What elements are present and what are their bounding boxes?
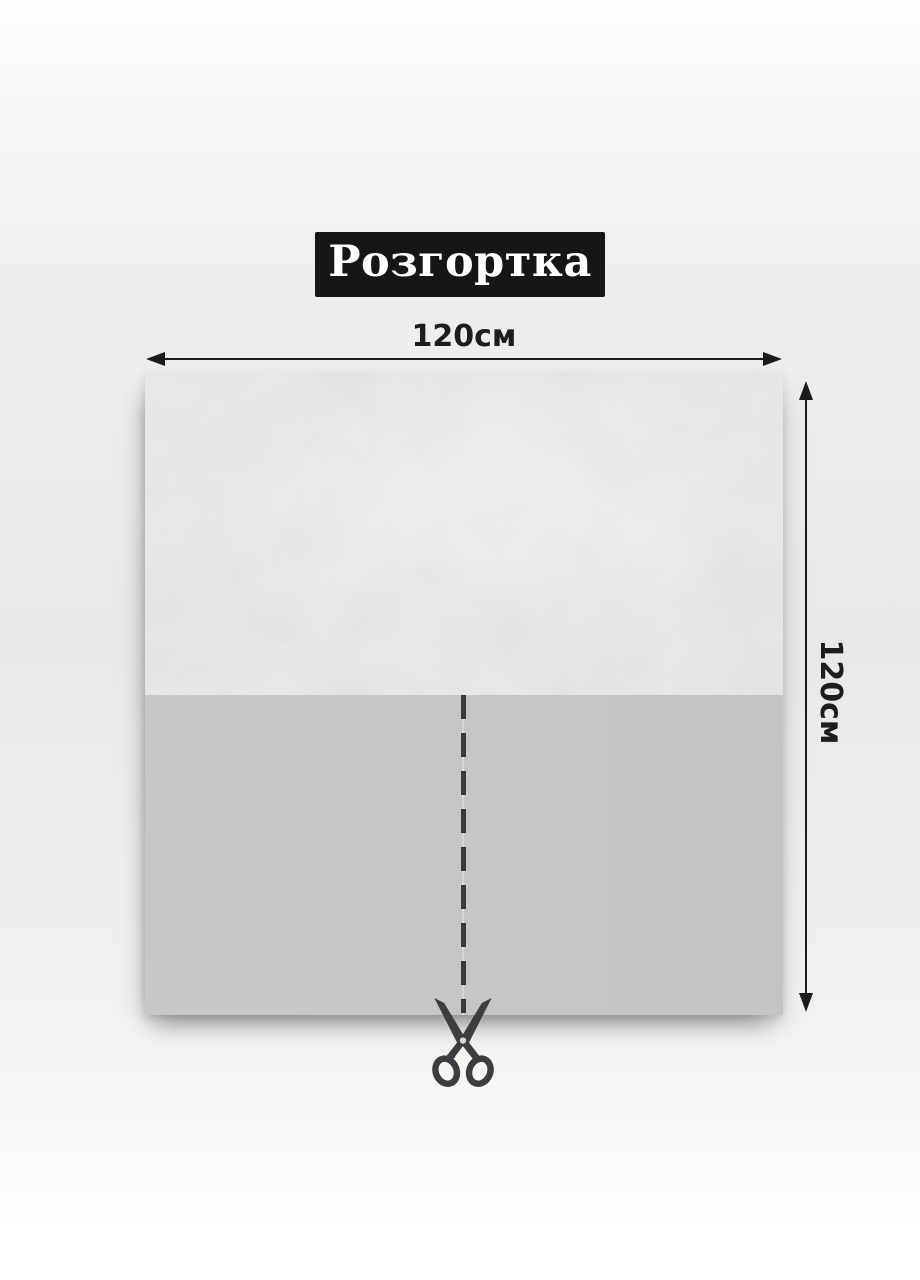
arrowhead-right-icon [763, 352, 782, 366]
width-dimension-arrow [146, 352, 782, 366]
title-banner: Розгортка [315, 232, 605, 297]
width-arrow-line [154, 358, 774, 360]
fabric-panel [145, 372, 783, 1015]
product-infographic: Розгортка 120см 120см [0, 0, 920, 1280]
height-dimension-label: 120см [815, 640, 845, 745]
dashed-cut-line [461, 695, 466, 1013]
textured-half [145, 372, 783, 695]
height-arrow-line [805, 389, 807, 1004]
height-dimension-arrow [799, 381, 813, 1012]
page-title: Розгортка [328, 241, 592, 288]
width-dimension-label: 120см [146, 322, 782, 352]
scissors-icon [425, 997, 501, 1092]
texture-highlight [145, 372, 783, 695]
arrowhead-down-icon [799, 993, 813, 1012]
